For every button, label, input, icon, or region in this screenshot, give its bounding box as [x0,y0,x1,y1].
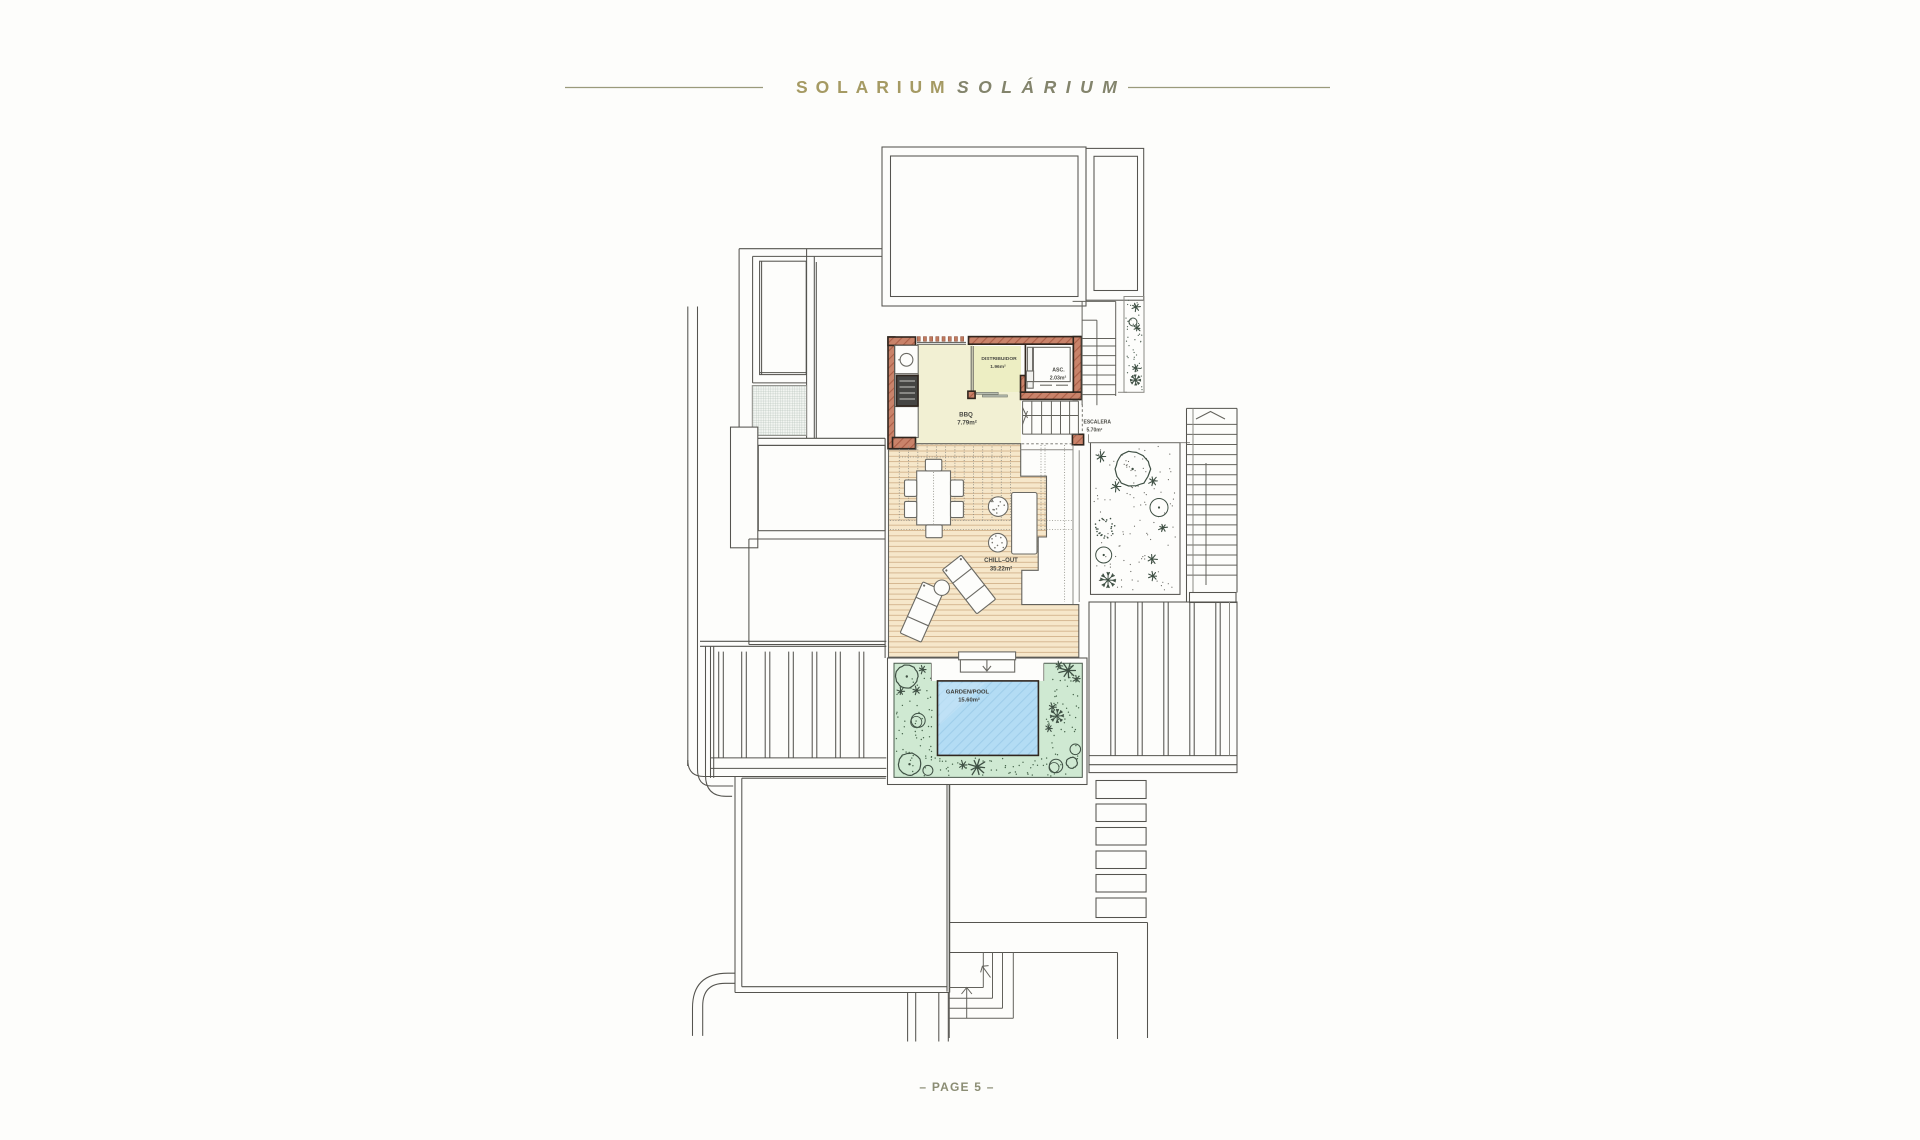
svg-text:35.22m²: 35.22m² [990,566,1012,573]
svg-text:ESCALERA: ESCALERA [1084,420,1112,426]
svg-text:– PAGE 5 –: – PAGE 5 – [919,1080,994,1094]
svg-text:GARDEN/POOL: GARDEN/POOL [946,690,990,696]
svg-text:SOLÁRIUM: SOLÁRIUM [957,76,1126,97]
svg-text:15.60m²: 15.60m² [958,697,980,704]
svg-text:BBQ: BBQ [959,412,973,419]
svg-text:CHILL–OUT: CHILL–OUT [984,558,1018,564]
svg-text:5.70m²: 5.70m² [1087,428,1103,434]
svg-text:DISTRIBUIDOR: DISTRIBUIDOR [981,356,1017,362]
svg-text:ASC.: ASC. [1052,368,1065,374]
svg-text:7.79m²: 7.79m² [957,420,977,427]
svg-text:SOLARIUM: SOLARIUM [796,77,953,97]
svg-text:2.03m²: 2.03m² [1050,376,1067,382]
svg-text:1.96m²: 1.96m² [990,364,1006,370]
